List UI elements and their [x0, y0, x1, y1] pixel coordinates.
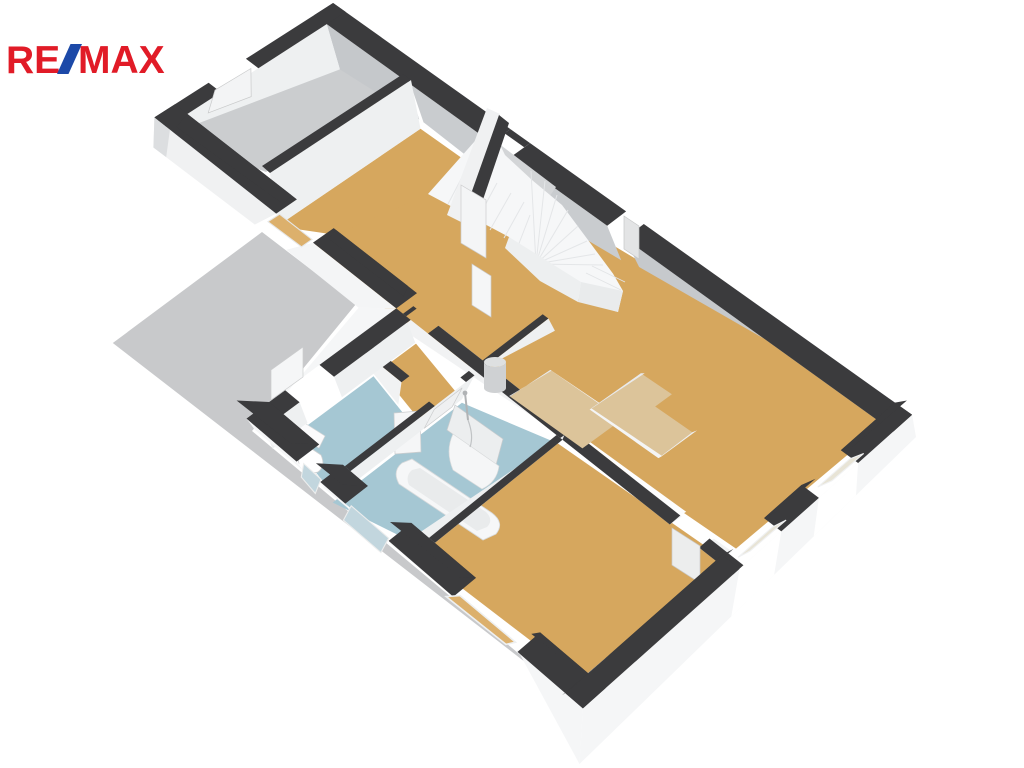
svg-text:MAX: MAX — [78, 39, 165, 82]
svg-text:RE: RE — [6, 39, 60, 82]
